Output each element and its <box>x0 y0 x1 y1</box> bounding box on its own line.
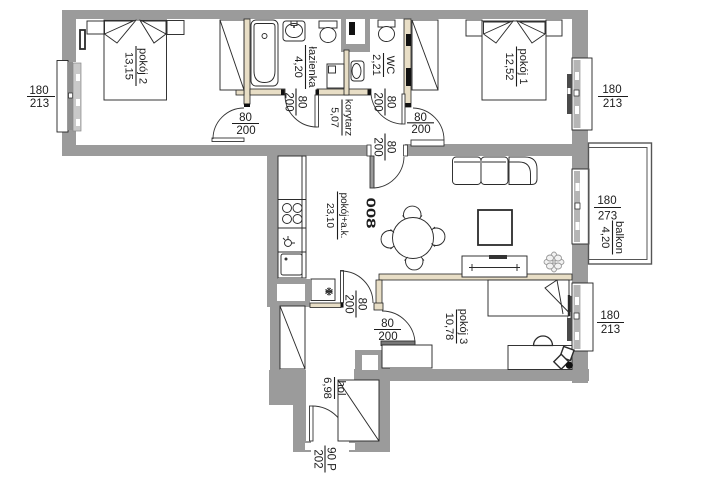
svg-text:13,15: 13,15 <box>123 52 135 80</box>
svg-text:200: 200 <box>411 124 430 136</box>
svg-text:pokój+a.k.: pokój+a.k. <box>338 193 349 239</box>
svg-text:80: 80 <box>385 96 397 109</box>
svg-text:180: 180 <box>602 84 621 96</box>
svg-text:80: 80 <box>296 96 308 109</box>
svg-text:12,52: 12,52 <box>503 53 515 81</box>
svg-text:90 P: 90 P <box>325 447 337 471</box>
svg-text:pokój 3: pokój 3 <box>457 309 469 344</box>
svg-text:6,98: 6,98 <box>321 377 333 399</box>
svg-text:hol: hol <box>335 381 347 396</box>
svg-text:80: 80 <box>381 318 394 330</box>
svg-text:80: 80 <box>385 141 397 154</box>
svg-text:80: 80 <box>356 298 368 311</box>
svg-text:200: 200 <box>372 92 384 111</box>
svg-text:WC: WC <box>384 56 396 75</box>
svg-text:273: 273 <box>598 211 617 223</box>
svg-text:23,10: 23,10 <box>324 203 335 228</box>
svg-text:180: 180 <box>600 310 619 322</box>
svg-text:200: 200 <box>236 125 255 137</box>
svg-text:pokój 2: pokój 2 <box>137 48 149 84</box>
svg-text:balkon: balkon <box>613 221 625 254</box>
svg-text:10,78: 10,78 <box>443 313 455 341</box>
svg-text:180: 180 <box>29 85 48 97</box>
svg-text:200: 200 <box>378 331 397 343</box>
svg-text:80: 80 <box>414 112 427 124</box>
svg-text:213: 213 <box>603 98 622 110</box>
svg-text:80: 80 <box>239 112 252 124</box>
svg-text:213: 213 <box>30 98 49 110</box>
svg-text:4,20: 4,20 <box>599 227 611 249</box>
svg-text:4,20: 4,20 <box>292 56 304 78</box>
svg-text:200: 200 <box>283 92 295 111</box>
svg-text:213: 213 <box>601 324 620 336</box>
svg-text:2,21: 2,21 <box>370 54 382 76</box>
svg-text:łazienka: łazienka <box>306 46 318 88</box>
svg-text:202: 202 <box>312 449 324 468</box>
svg-text:pokój 1: pokój 1 <box>517 48 529 84</box>
svg-text:200: 200 <box>372 137 384 156</box>
svg-text:200: 200 <box>343 294 355 313</box>
svg-text:5,07: 5,07 <box>329 107 341 128</box>
svg-text:korytarz: korytarz <box>343 99 355 136</box>
svg-text:008: 008 <box>364 198 378 229</box>
svg-text:180: 180 <box>597 195 616 207</box>
